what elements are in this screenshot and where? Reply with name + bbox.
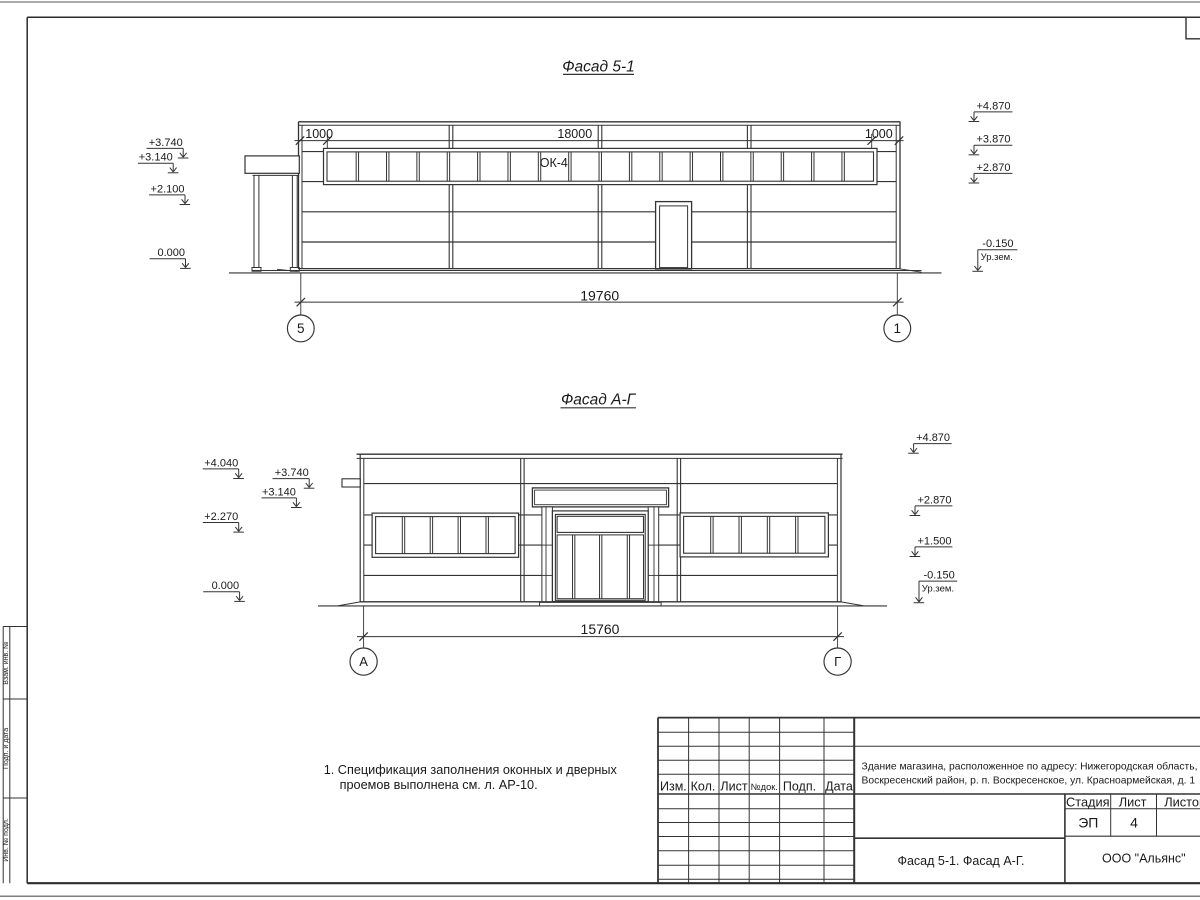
svg-text:+2.870: +2.870 bbox=[918, 494, 952, 506]
svg-text:Подп. и дата: Подп. и дата bbox=[3, 728, 10, 769]
svg-text:ОК-4: ОК-4 bbox=[540, 156, 568, 170]
svg-text:Взам. инв. №: Взам. инв. № bbox=[3, 641, 10, 684]
svg-text:+4.870: +4.870 bbox=[977, 100, 1011, 112]
svg-text:Инв. № подл.: Инв. № подл. bbox=[3, 818, 10, 862]
svg-text:Фасад 5-1: Фасад 5-1 bbox=[562, 59, 635, 76]
svg-text:+3.740: +3.740 bbox=[149, 137, 183, 149]
svg-text:+4.040: +4.040 bbox=[204, 457, 238, 469]
svg-text:1: 1 bbox=[894, 321, 902, 336]
svg-text:Кол.: Кол. bbox=[691, 780, 716, 794]
svg-text:Листов: Листов bbox=[1164, 795, 1200, 810]
svg-text:Фасад 5-1. Фасад А-Г.: Фасад 5-1. Фасад А-Г. bbox=[897, 854, 1024, 868]
svg-text:0.000: 0.000 bbox=[157, 247, 185, 259]
svg-text:+4.870: +4.870 bbox=[916, 432, 950, 444]
svg-text:Изм.: Изм. bbox=[660, 780, 687, 794]
svg-text:Стадия: Стадия bbox=[1066, 795, 1110, 810]
svg-text:+3.740: +3.740 bbox=[275, 467, 309, 479]
svg-text:проемов выполнена см. л. АР-10: проемов выполнена см. л. АР-10. bbox=[340, 778, 538, 792]
svg-text:Лист: Лист bbox=[720, 780, 747, 794]
svg-text:А: А bbox=[359, 654, 368, 669]
svg-text:5: 5 bbox=[297, 321, 305, 336]
svg-text:-0.150: -0.150 bbox=[982, 238, 1013, 250]
svg-text:15760: 15760 bbox=[581, 621, 620, 637]
svg-text:Ур.зем.: Ур.зем. bbox=[922, 583, 954, 594]
svg-text:1000: 1000 bbox=[865, 127, 893, 141]
svg-text:1. Спецификация заполнения око: 1. Спецификация заполнения оконных и две… bbox=[324, 763, 618, 777]
svg-text:Г: Г bbox=[834, 654, 841, 669]
svg-text:Подп.: Подп. bbox=[783, 780, 816, 794]
svg-text:ООО "Альянс": ООО "Альянс" bbox=[1102, 852, 1186, 866]
svg-text:+3.140: +3.140 bbox=[139, 152, 173, 164]
svg-text:-0.150: -0.150 bbox=[924, 570, 955, 582]
svg-text:+1.500: +1.500 bbox=[918, 535, 952, 547]
svg-text:ЭП: ЭП bbox=[1078, 815, 1098, 831]
svg-text:Фасад А-Г: Фасад А-Г bbox=[561, 392, 637, 409]
svg-text:Дата: Дата bbox=[825, 780, 853, 794]
svg-text:+2.870: +2.870 bbox=[977, 162, 1011, 174]
svg-text:Здание магазина, расположенное: Здание магазина, расположенное по адресу… bbox=[862, 761, 1198, 773]
svg-text:19760: 19760 bbox=[580, 287, 619, 303]
svg-text:Воскресенский район, р. п. Вос: Воскресенский район, р. п. Воскресенское… bbox=[862, 776, 1196, 787]
svg-text:18000: 18000 bbox=[557, 127, 592, 141]
svg-text:+3.140: +3.140 bbox=[262, 486, 296, 498]
svg-text:Лист: Лист bbox=[1119, 795, 1147, 810]
svg-text:1000: 1000 bbox=[305, 127, 333, 141]
svg-text:+2.100: +2.100 bbox=[151, 183, 185, 195]
svg-text:4: 4 bbox=[1130, 815, 1138, 831]
svg-text:Ур.зем.: Ур.зем. bbox=[981, 252, 1013, 263]
svg-text:+2.270: +2.270 bbox=[204, 511, 238, 523]
svg-text:№док.: №док. bbox=[751, 782, 778, 792]
svg-text:+3.870: +3.870 bbox=[977, 134, 1011, 146]
svg-text:0.000: 0.000 bbox=[212, 580, 240, 592]
